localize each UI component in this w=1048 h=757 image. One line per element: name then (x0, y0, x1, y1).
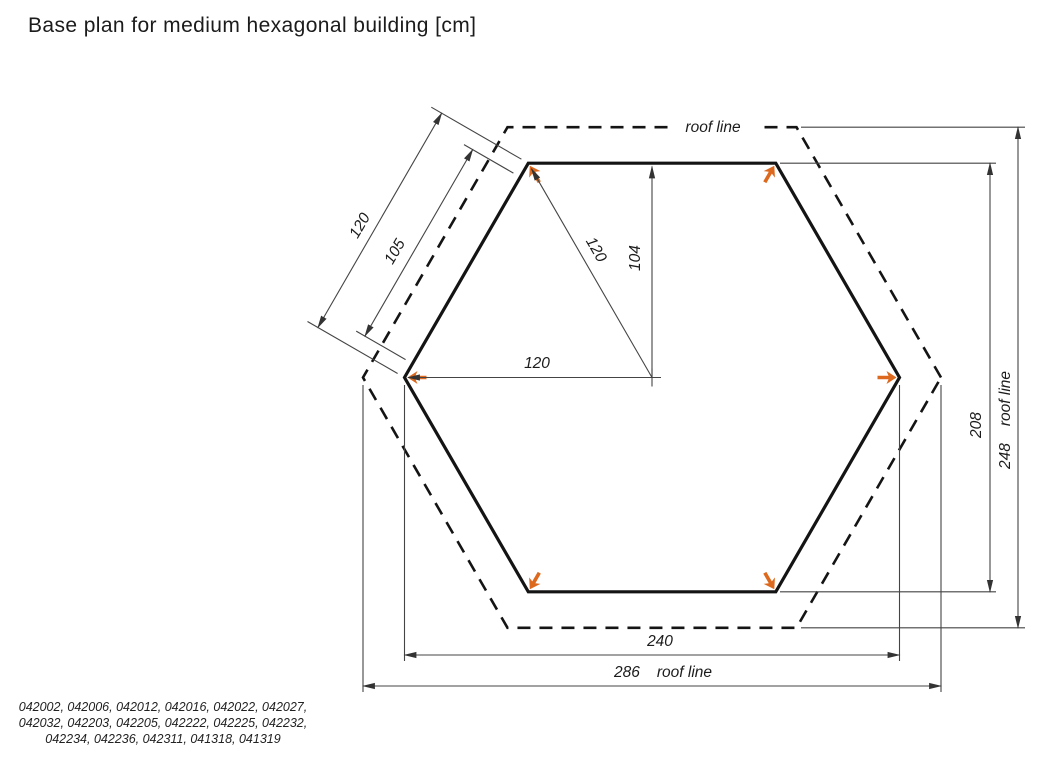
roof-line-label: roof line (685, 119, 741, 136)
dim-building-width-label: 240 (646, 633, 673, 650)
dim-center-to-left-corner-label: 120 (524, 355, 550, 372)
corner-post-icon (878, 371, 897, 384)
dim-roof-height: 248roof line (801, 127, 1025, 628)
product-codes-line: 042234, 042236, 042311, 041318, 041319 (6, 731, 320, 747)
roof-line-label: roof line (657, 664, 713, 681)
dim-center-to-corner: 120 (532, 169, 653, 378)
dim-center-to-corner-label: 120 (582, 234, 610, 265)
dim-center-to-left-corner: 120 (408, 355, 652, 378)
dim-building-height-label: 208 (968, 412, 985, 439)
dim-wall-edge-label: 105 (381, 236, 409, 267)
dim-center-to-wall-label: 104 (627, 245, 644, 271)
dim-roof-width-label: 286roof line (613, 664, 712, 681)
product-codes-line: 042002, 042006, 042012, 042016, 042022, … (6, 699, 320, 715)
dim-roof-edge: 120 (308, 107, 522, 373)
dim-center-to-wall: 104 (627, 167, 652, 378)
dim-roof-height-label: 248roof line (997, 371, 1014, 470)
dim-roof-width-value: 286 (613, 664, 640, 681)
roof-line-label: roof line (997, 371, 1014, 427)
base-plan-drawing: 120 104 120 120 105 208 248roof line (0, 0, 1048, 757)
dim-building-width: 240 (405, 385, 900, 661)
product-codes-line: 042032, 042203, 042205, 042222, 042225, … (6, 715, 320, 731)
product-codes: 042002, 042006, 042012, 042016, 042022, … (6, 699, 320, 747)
roof-line-top-label: roof line (668, 113, 758, 136)
dim-roof-height-value: 248 (997, 443, 1014, 470)
